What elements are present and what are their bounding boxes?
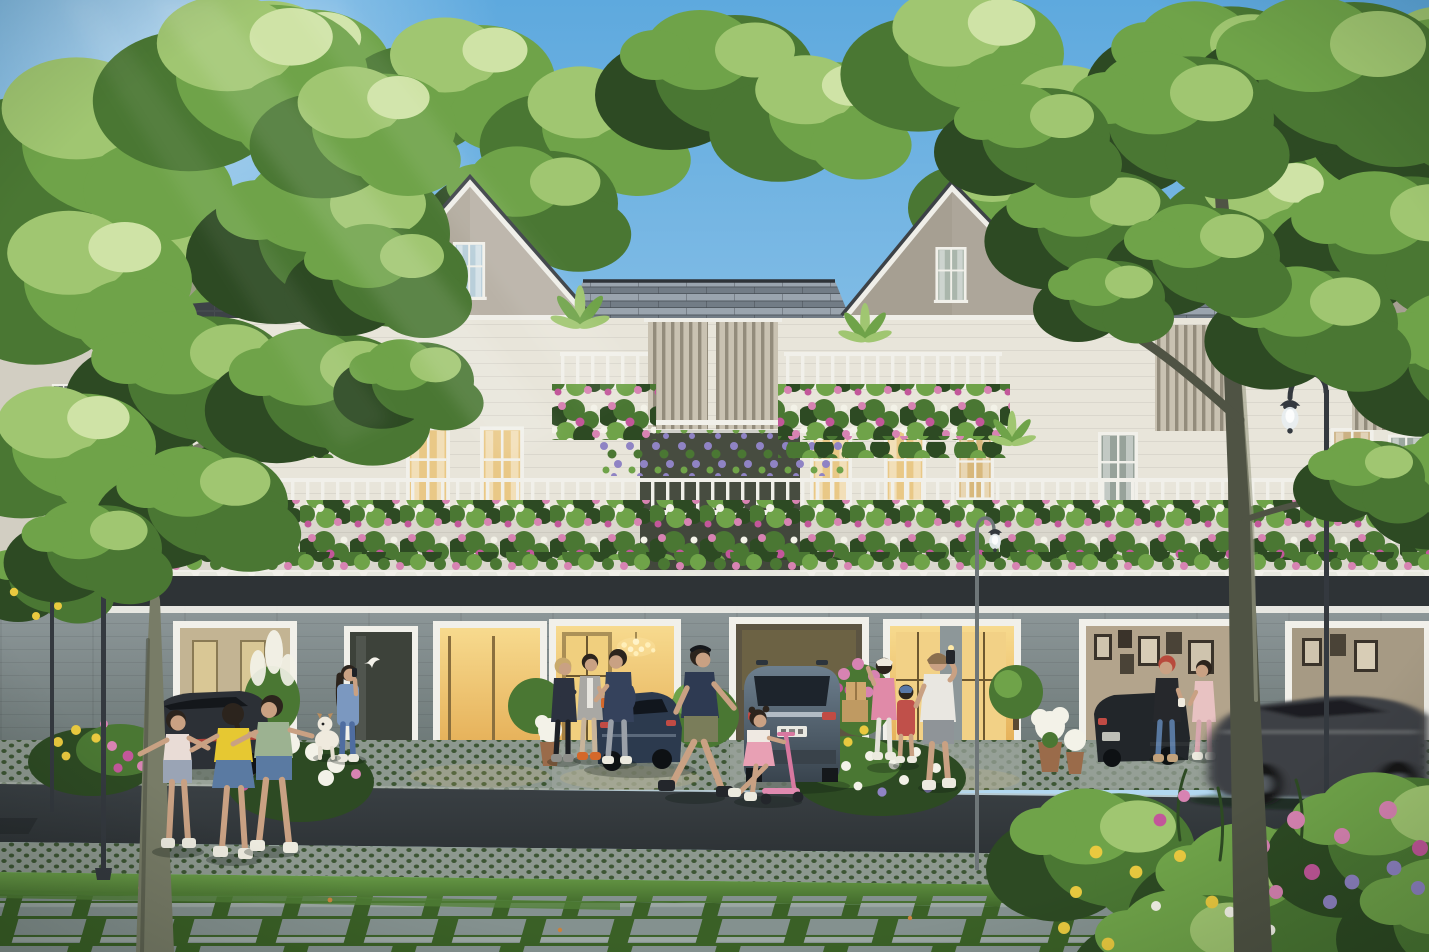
townhouse-render bbox=[0, 0, 1429, 952]
render-viewport bbox=[0, 0, 1429, 952]
vignette bbox=[0, 0, 1429, 952]
